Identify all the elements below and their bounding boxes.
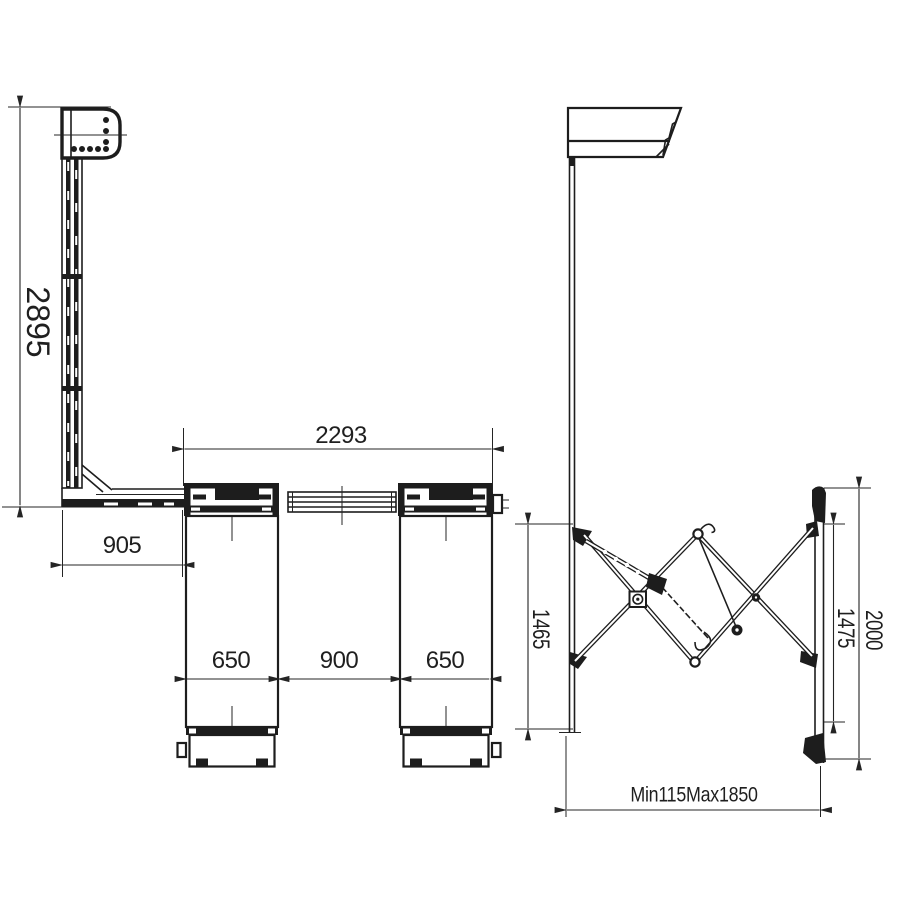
base-arm [62,465,186,508]
dim-label-right-leg: 650 [426,649,465,673]
scissor-mechanism [570,521,819,669]
wall-pole [559,158,581,733]
dim-label-bracket-inner: 1475 [833,608,857,648]
side-elevation-view [515,108,871,817]
dim-label-pole-extension: 1465 [528,609,552,649]
dim-label-overall-span: 2293 [315,424,366,448]
cross-beam [288,486,396,525]
dim-label-center-gap: 900 [320,649,359,673]
dim-label-bracket-overall: 2000 [861,610,885,650]
left-foot-tab [178,743,187,757]
drawing-canvas [0,0,900,900]
dim-label-horizontal-reach: Min115Max1850 [630,785,757,806]
canopy-head [568,108,681,157]
right-foot-tab [492,743,501,757]
technical-drawing-page: 2895 905 2293 650 900 650 1465 1475 2000… [0,0,900,900]
head-unit [54,109,127,158]
dim-label-left-leg: 650 [212,649,251,673]
dim-column-height [2,107,111,507]
right-cap-hook [493,495,509,513]
dim-label-base-arm: 905 [103,534,142,558]
dim-label-column-height: 2895 [22,286,54,357]
telescopic-column [62,158,82,488]
